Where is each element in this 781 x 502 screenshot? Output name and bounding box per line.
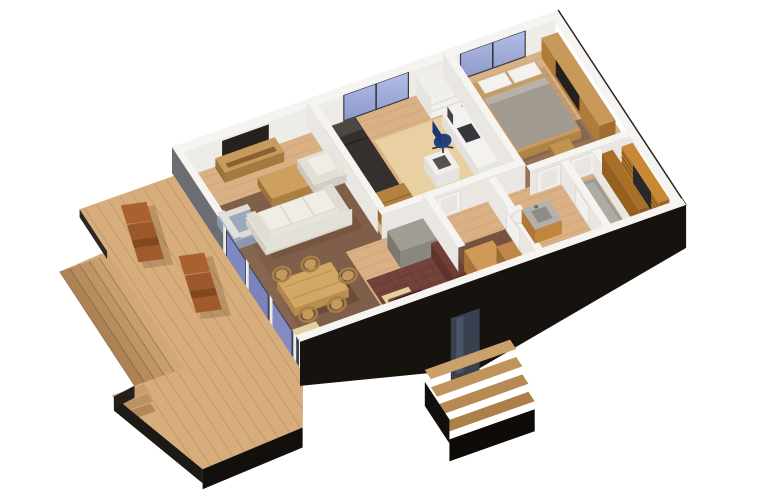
glass-wall-post xyxy=(246,259,249,290)
glass-wall-post xyxy=(270,295,273,326)
floor-plan-render: 3D axonometric cutaway rendering of a si… xyxy=(0,0,781,502)
glass-wall-post xyxy=(223,224,226,255)
glass-wall-post xyxy=(293,331,296,362)
render-canvas: 3D axonometric cutaway rendering of a si… xyxy=(0,0,781,502)
